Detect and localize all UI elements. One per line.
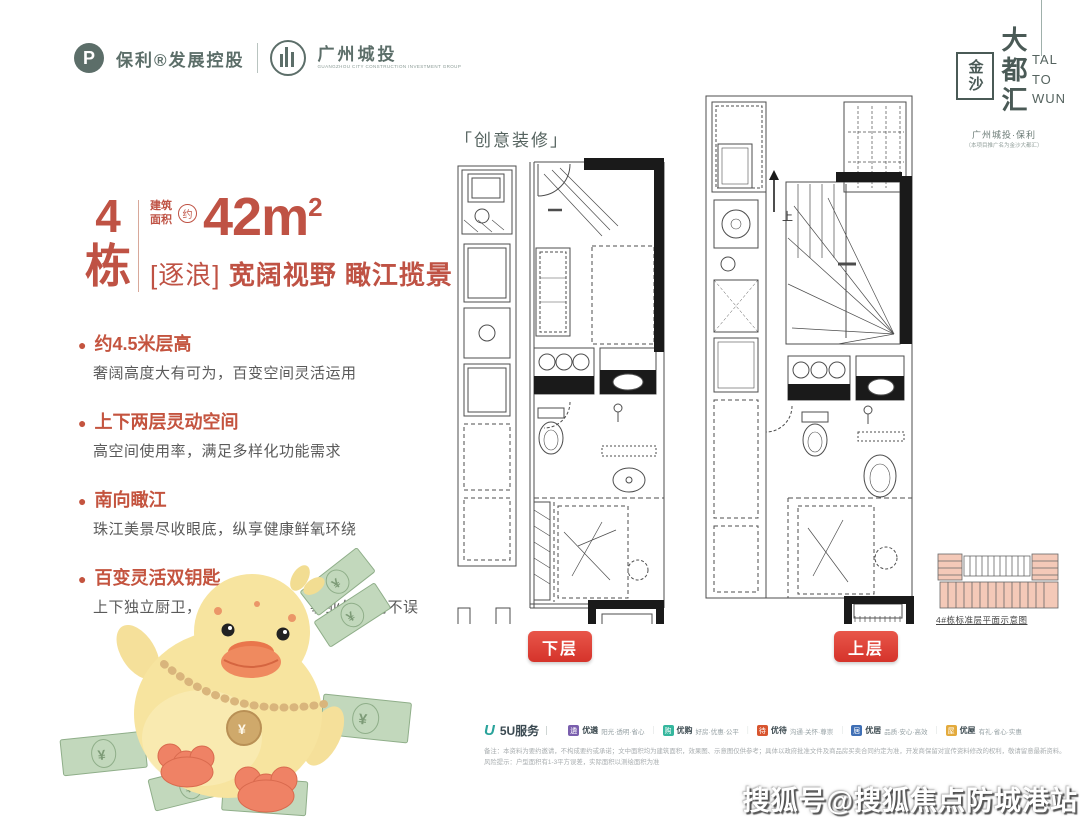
feature-item: ●约4.5米层高 奢阔高度大有可为，百变空间灵活运用 bbox=[78, 330, 430, 383]
svg-text:¥: ¥ bbox=[238, 721, 246, 737]
headline-divider bbox=[138, 200, 139, 292]
poly-brand-name: 保利®发展控股 bbox=[116, 46, 245, 71]
services-logo: 5U服务 bbox=[500, 722, 539, 739]
duck-mascot-illustration: ¥ ¥ ¥ ¥ ¥ bbox=[52, 548, 414, 824]
floor-plan-upper: 上 bbox=[698, 88, 922, 624]
area-value: 42m2 bbox=[203, 192, 322, 243]
gzcc-logo-icon bbox=[270, 40, 306, 76]
floor-plan-lower bbox=[452, 150, 670, 624]
service-item: 居 优居 品质·安心·高效 bbox=[851, 725, 927, 736]
service-icon: 待 bbox=[757, 725, 768, 736]
lower-floor-button[interactable]: 下层 bbox=[528, 631, 592, 662]
service-item: 遴 优遴 阳光·透明·省心 bbox=[568, 725, 644, 736]
approx-badge: 约 bbox=[178, 204, 197, 223]
up-arrow-label: 上 bbox=[782, 210, 793, 223]
service-icon: 屋 bbox=[946, 725, 957, 736]
upper-floor-button[interactable]: 上层 bbox=[834, 631, 898, 662]
area-label: 建筑 面积 bbox=[150, 200, 172, 228]
feature-item: ●上下两层灵动空间 高空间使用率，满足多样化功能需求 bbox=[78, 408, 430, 461]
bullet-icon: ● bbox=[78, 493, 86, 509]
service-item: 待 优待 沟通·关怀·尊崇 bbox=[757, 725, 833, 736]
tagline-bracket: [逐浪] bbox=[150, 260, 220, 290]
latin-line-3: WUN bbox=[1032, 89, 1066, 109]
building-no-unit: 栋 bbox=[84, 242, 132, 292]
bullet-icon: ● bbox=[78, 337, 86, 353]
sohu-watermark: 搜狐号@搜狐焦点防城港站 bbox=[743, 779, 1078, 818]
dadu-hui-characters: 大都汇 bbox=[1000, 26, 1026, 116]
keyplan-diagram bbox=[936, 550, 1062, 612]
deco-label: 「创意装修」 bbox=[455, 126, 569, 151]
feature-item: ●南向瞰江 珠江美景尽收眼底，纵享健康鲜氧环绕 bbox=[78, 486, 430, 539]
brand-divider bbox=[257, 43, 258, 73]
poly-logo-icon: P bbox=[74, 43, 104, 73]
building-no-digit: 4 bbox=[84, 192, 132, 242]
service-separator: ｜ bbox=[933, 725, 941, 736]
services-logo-subtext bbox=[546, 726, 561, 735]
project-logo-subtext: 广州城投·保利 （本项目推广名为金沙大都汇） bbox=[944, 128, 1064, 149]
service-separator: ｜ bbox=[744, 725, 752, 736]
service-item: 屋 优屋 有礼·省心·实惠 bbox=[946, 725, 1022, 736]
headline-block: 建筑 面积 约 42m2 [逐浪] 宽阔视野 瞰江揽景 bbox=[150, 192, 480, 292]
brand-bar: P 保利®发展控股 广州城投 GUANGZHOU CITY CONSTRUCTI… bbox=[74, 40, 461, 76]
project-logo-latin: TAL TO WUN bbox=[1032, 50, 1066, 109]
disclaimer-line-1: 备注：本资料为要约邀请，不构成要约或承诺；文中面积均为建筑面积，效果图、示意图仅… bbox=[484, 747, 1074, 758]
service-icon: 居 bbox=[851, 725, 862, 736]
flyer-page: P 保利®发展控股 广州城投 GUANGZHOU CITY CONSTRUCTI… bbox=[0, 0, 1080, 824]
developer-names: 广州城投·保利 bbox=[944, 128, 1064, 141]
bullet-icon: ● bbox=[78, 415, 86, 431]
tagline-rest: 宽阔视野 瞰江揽景 bbox=[229, 260, 453, 290]
disclaimer-text: 备注：本资料为要约邀请，不构成要约或承诺；文中面积均为建筑面积，效果图、示意图仅… bbox=[484, 747, 1074, 769]
service-icon: 遴 bbox=[568, 725, 579, 736]
service-separator: ｜ bbox=[650, 725, 658, 736]
services-bar: U 5U服务 遴 优遴 阳光·透明·省心 ｜ 购 优购 好房·优惠·公平 ｜ 待… bbox=[484, 722, 1076, 739]
service-icon: 购 bbox=[663, 725, 674, 736]
promo-name-note: （本项目推广名为金沙大都汇） bbox=[944, 141, 1064, 149]
gzcc-brand-name: 广州城投 bbox=[318, 46, 462, 65]
building-number: 4 栋 bbox=[84, 192, 132, 291]
project-logo: 金沙 大都汇 TAL TO WUN bbox=[956, 26, 1066, 116]
jinsha-seal: 金沙 bbox=[956, 52, 994, 100]
keyplan-caption: 4#栋标准层平面示意图 bbox=[936, 614, 1064, 626]
five-u-icon: U bbox=[484, 722, 495, 739]
tagline: [逐浪] 宽阔视野 瞰江揽景 bbox=[150, 255, 480, 292]
latin-line-1: TAL bbox=[1032, 50, 1066, 70]
service-separator: ｜ bbox=[838, 725, 846, 736]
disclaimer-line-2: 风险提示：户型面积有1-3平方误差，实际面积以测绘面积为准 bbox=[484, 758, 1074, 769]
service-item: 购 优购 好房·优惠·公平 bbox=[663, 725, 739, 736]
gzcc-brand-sub: GUANGZHOU CITY CONSTRUCTION INVESTMENT G… bbox=[318, 65, 462, 70]
latin-line-2: TO bbox=[1032, 70, 1066, 90]
